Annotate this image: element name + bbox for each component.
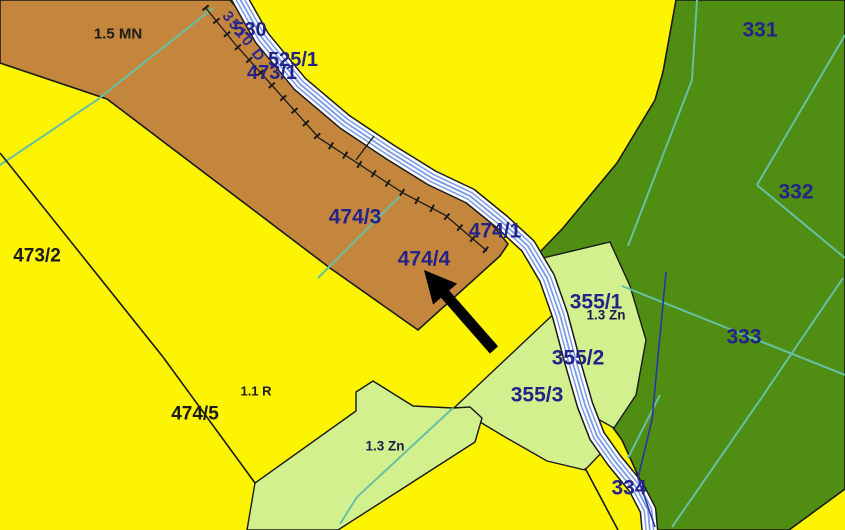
cadastral-map[interactable] xyxy=(0,0,845,530)
map-canvas[interactable]: 1.5 MN 530 3510 D 525/1 473/1 473/2 474/… xyxy=(0,0,845,530)
